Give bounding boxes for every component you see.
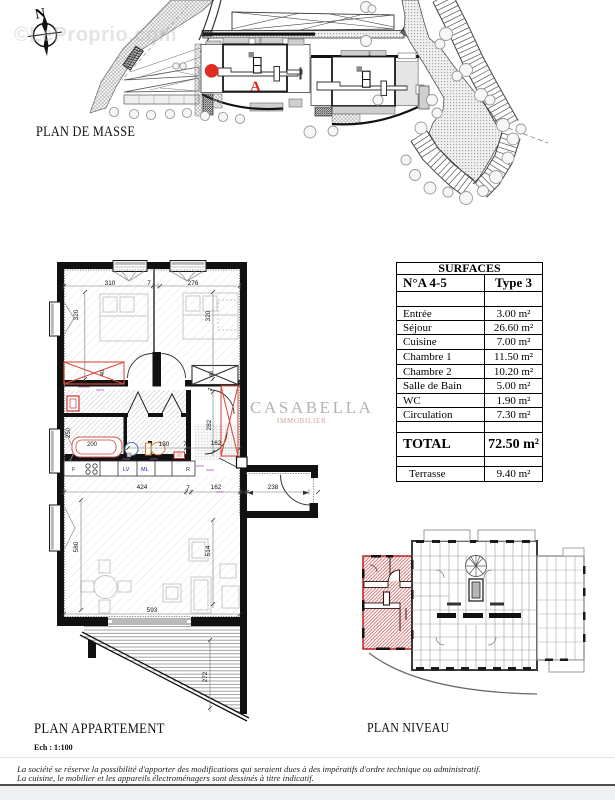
svg-text:238: 238 bbox=[268, 484, 279, 491]
svg-text:A: A bbox=[250, 79, 261, 95]
svg-text:162: 162 bbox=[211, 484, 222, 491]
svg-text:7: 7 bbox=[147, 280, 151, 287]
svg-text:320: 320 bbox=[73, 309, 80, 320]
svg-text:580: 580 bbox=[73, 541, 80, 552]
svg-text:ML: ML bbox=[141, 467, 149, 473]
svg-text:40: 40 bbox=[100, 370, 106, 376]
svg-text:276: 276 bbox=[188, 280, 199, 287]
svg-text:282: 282 bbox=[206, 419, 213, 430]
svg-text:320: 320 bbox=[205, 310, 212, 321]
svg-text:200: 200 bbox=[87, 442, 98, 448]
svg-text:593: 593 bbox=[147, 607, 158, 614]
svg-text:130: 130 bbox=[159, 441, 170, 448]
svg-text:272: 272 bbox=[202, 671, 209, 682]
svg-text:R: R bbox=[186, 467, 190, 473]
svg-text:162: 162 bbox=[211, 440, 222, 447]
svg-text:7: 7 bbox=[208, 388, 214, 391]
svg-text:424: 424 bbox=[137, 484, 148, 491]
svg-text:LV: LV bbox=[123, 467, 130, 473]
svg-text:310: 310 bbox=[105, 280, 116, 287]
svg-text:N: N bbox=[34, 6, 47, 23]
svg-text:40: 40 bbox=[209, 371, 215, 377]
svg-text:514: 514 bbox=[205, 545, 212, 556]
svg-text:250: 250 bbox=[66, 427, 72, 438]
